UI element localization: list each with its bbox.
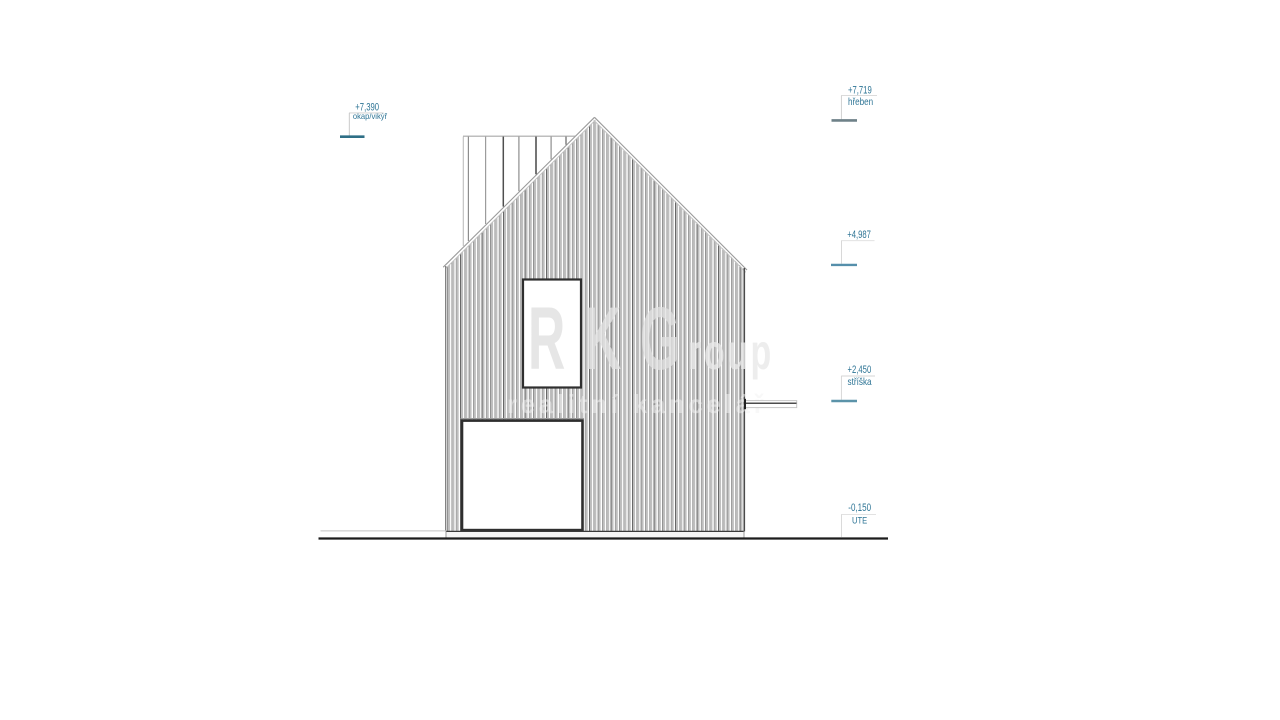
svg-text:-0,150: -0,150 bbox=[848, 502, 871, 515]
svg-text:hřeben: hřeben bbox=[848, 96, 873, 107]
svg-text:+4,987: +4,987 bbox=[847, 229, 871, 242]
svg-text:K: K bbox=[584, 289, 621, 388]
svg-text:realitní kancelář: realitní kancelář bbox=[507, 391, 768, 419]
svg-text:roup: roup bbox=[688, 325, 774, 381]
svg-text:+2,450: +2,450 bbox=[848, 364, 872, 377]
svg-text:R: R bbox=[528, 289, 565, 388]
svg-text:stříška: stříška bbox=[848, 376, 873, 387]
svg-text:okap/vikýř: okap/vikýř bbox=[353, 112, 388, 121]
svg-text:+7,719: +7,719 bbox=[848, 84, 872, 97]
svg-text:UTE: UTE bbox=[852, 515, 867, 526]
svg-text:G: G bbox=[640, 289, 680, 388]
